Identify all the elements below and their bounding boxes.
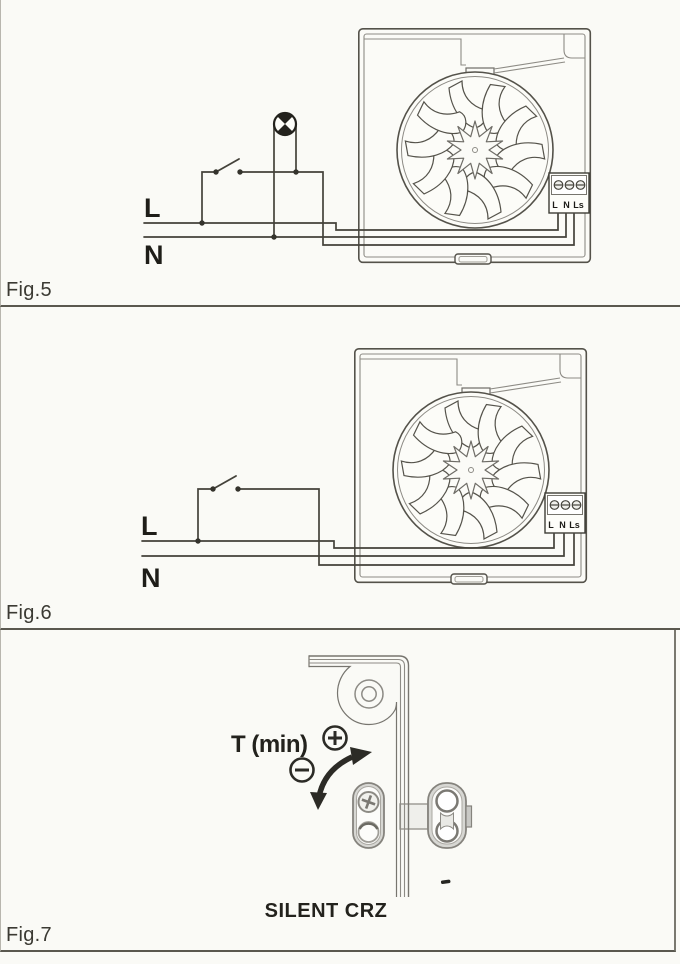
plus-icon bbox=[324, 727, 347, 750]
figure-panel-fig6: L N Fig.6 bbox=[0, 307, 680, 630]
switch-symbol bbox=[213, 476, 236, 489]
figure-caption-fig6: Fig.6 bbox=[6, 602, 52, 625]
junction-dots bbox=[199, 169, 298, 239]
figure-panel-fig5: L N Fig.5 bbox=[0, 0, 680, 307]
neutral-line-label: N bbox=[144, 240, 164, 270]
junction-dots bbox=[195, 486, 240, 543]
fig7-timer-adjustment-diagram: T (min) bbox=[1, 630, 675, 952]
fig5-wiring-diagram: L N bbox=[1, 0, 680, 307]
live-line-label: L bbox=[141, 511, 158, 541]
switch-feed-wire bbox=[198, 489, 213, 541]
switch-symbol bbox=[216, 159, 239, 172]
figure-caption-fig5: Fig.5 bbox=[6, 279, 52, 302]
figure-panel-fig7: T (min) bbox=[0, 630, 676, 952]
side-connector bbox=[428, 783, 472, 848]
product-name-label: SILENT CRZ bbox=[265, 900, 388, 922]
figure-caption-fig7: Fig.7 bbox=[6, 924, 52, 947]
switch-feed-wire bbox=[202, 172, 216, 223]
live-line-label: L bbox=[144, 193, 161, 223]
fig6-wiring-diagram: L N bbox=[1, 307, 680, 630]
screw-boss-icon bbox=[355, 680, 383, 708]
small-dash-mark bbox=[441, 879, 451, 884]
manual-page: L N Ls bbox=[0, 0, 680, 964]
timer-adjustment-label: T (min) bbox=[231, 731, 307, 758]
minus-icon bbox=[291, 759, 314, 782]
timer-potentiometer bbox=[353, 783, 384, 848]
neutral-line-label: N bbox=[141, 563, 161, 593]
housing-edge-lines bbox=[309, 655, 409, 897]
lamp-icon bbox=[274, 113, 296, 135]
